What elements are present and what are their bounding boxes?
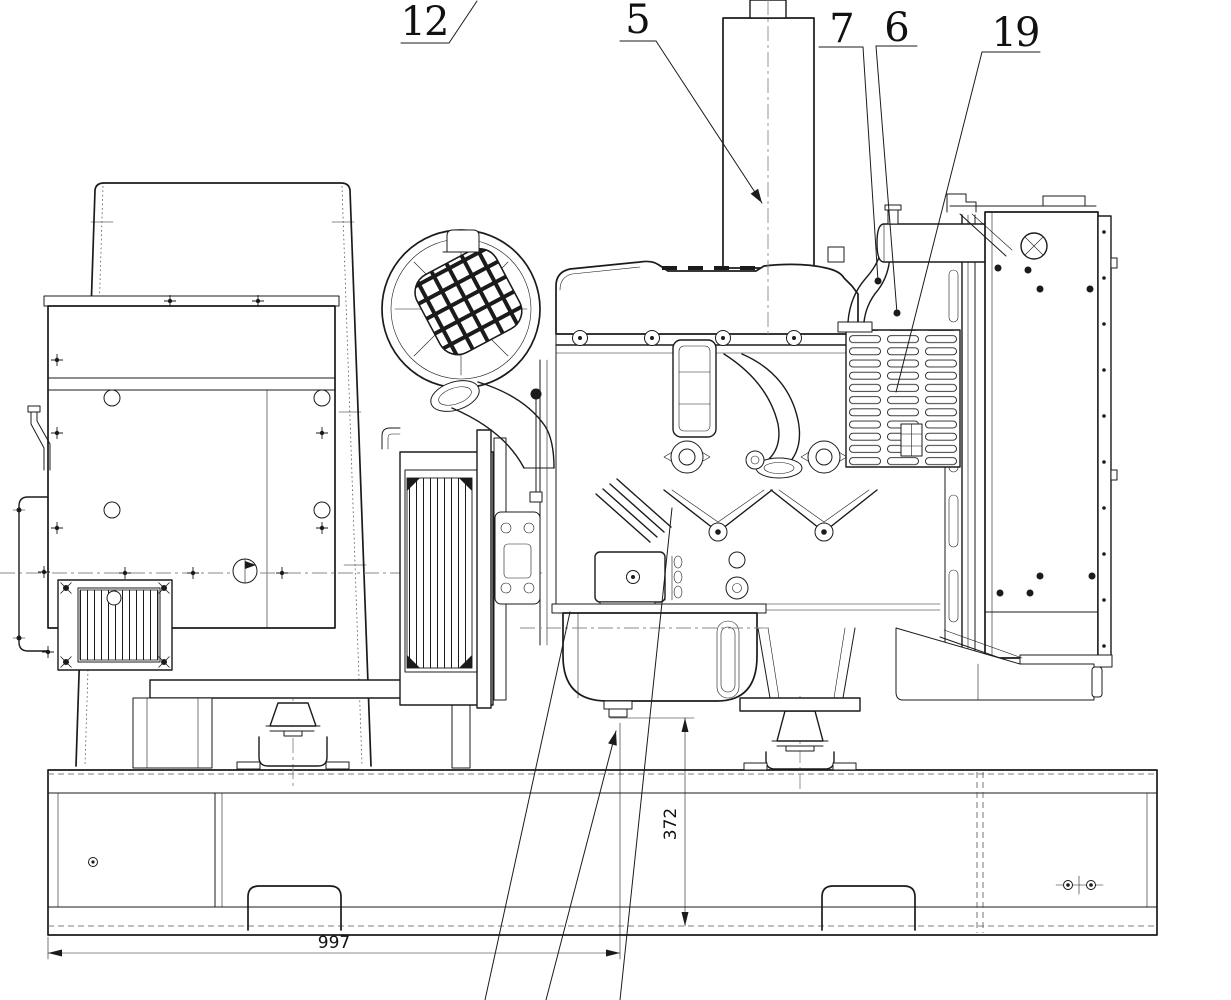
fuel-pipes xyxy=(596,479,671,542)
exhaust-stack xyxy=(723,0,814,268)
drain-plug xyxy=(604,701,632,709)
side-brackets xyxy=(13,406,50,651)
support-leg-right xyxy=(452,705,470,768)
generator-set-technical-drawing: 997 372 12 5 7 6 xyxy=(0,0,1231,1000)
dim-997-label: 997 xyxy=(318,933,350,953)
front-bracket xyxy=(495,512,540,604)
alternator-support-plate xyxy=(150,680,420,698)
alternator-grille xyxy=(382,428,506,708)
exhaust-manifold xyxy=(673,340,716,437)
cooling-system xyxy=(838,194,1117,700)
air-cleaner xyxy=(382,230,554,468)
rotation-mark xyxy=(233,559,257,583)
breather-cap xyxy=(828,247,844,262)
coolant-pipe xyxy=(382,428,400,449)
callout-12-label: 12 xyxy=(401,0,448,45)
radiator-bolt-strip xyxy=(1098,216,1117,662)
callout-5-label: 5 xyxy=(625,0,648,43)
dim-372-label: 372 xyxy=(661,808,681,840)
terminal-box xyxy=(44,296,339,628)
callout-7: 7 xyxy=(819,6,882,285)
callout-6: 6 xyxy=(876,5,917,317)
callout-19-label: 19 xyxy=(992,10,1039,56)
adapter-flange xyxy=(477,430,491,708)
callout-12: 12 xyxy=(401,0,477,45)
callout-7-label: 7 xyxy=(829,6,852,52)
radiator-cap xyxy=(1021,233,1047,259)
valve-cover xyxy=(556,247,868,346)
intercooler-grille xyxy=(846,330,960,467)
base-frame xyxy=(48,770,1157,935)
oil-sump xyxy=(552,604,766,717)
radiator-drain xyxy=(1092,667,1102,697)
injection-pump xyxy=(595,552,682,610)
louver-vent xyxy=(58,580,172,670)
engine-mount-bracket xyxy=(740,628,860,711)
callout-6-label: 6 xyxy=(884,5,907,51)
support-leg-left xyxy=(133,698,212,768)
